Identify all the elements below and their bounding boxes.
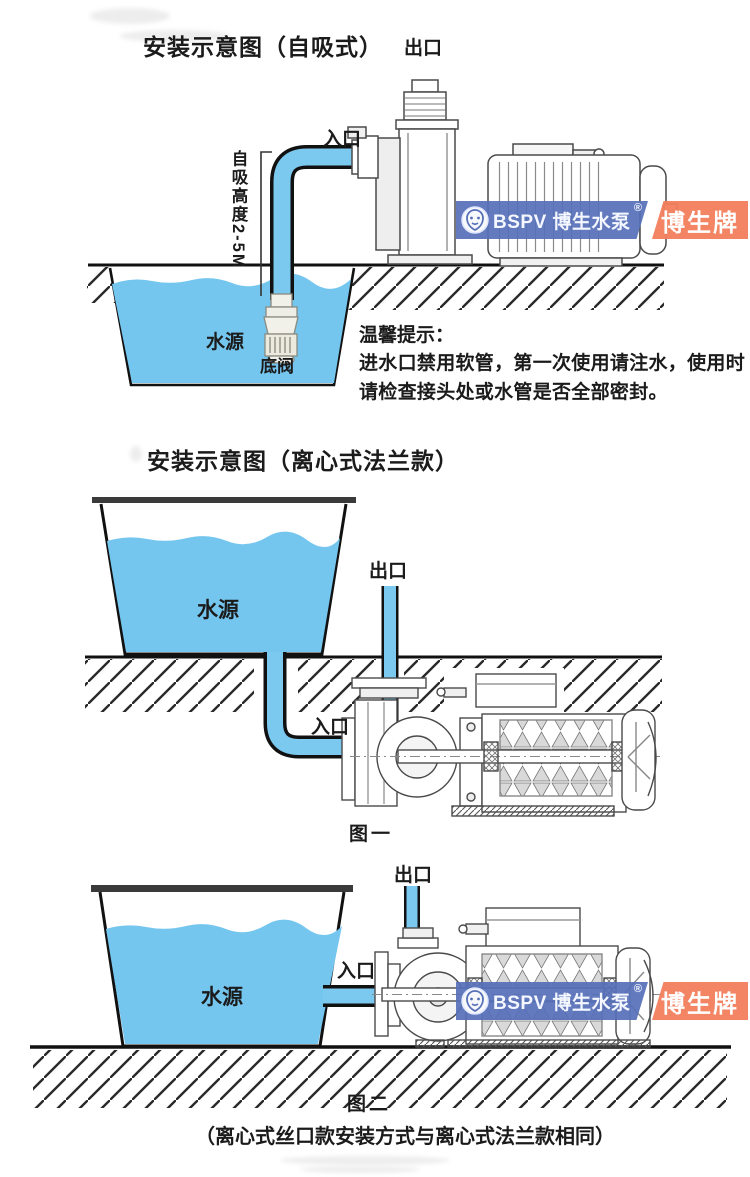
bottom-note: （离心式丝口款安装方式与离心式法兰款相同） — [55, 1120, 750, 1149]
water-source-label-2: 水源 — [197, 594, 239, 624]
brand-watermark-top: BSPV 博生水泵 ® 博生牌 — [456, 201, 748, 239]
lion-shield-logo-icon — [460, 205, 490, 235]
watermark-brand-strip: BSPV 博生水泵 ® — [456, 201, 648, 239]
tips-title: 温馨提示： — [359, 320, 454, 347]
watermark-badge-strip: 博生牌 — [652, 982, 748, 1020]
outlet-label-1: 出口 — [404, 33, 442, 60]
centrifugal-pump-section-2 — [372, 908, 662, 1047]
outlet-label-3: 出口 — [394, 860, 432, 887]
centrifugal-flange-diagram — [85, 497, 662, 816]
suction-height-label: 自吸高度2-5M — [226, 150, 250, 325]
figure1-caption: 图一 — [349, 819, 393, 846]
installation-diagram-page: 安装示意图（自吸式） 出口 入口 自吸高度2-5M 水源 底阀 温馨提示： 进水… — [0, 0, 750, 1177]
watermark-badge-strip: 博生牌 — [652, 201, 748, 239]
registered-mark: ® — [634, 983, 642, 995]
section2-title: 安装示意图（离心式法兰款） — [147, 442, 459, 476]
watermark-brand-text: BSPV 博生水泵 — [493, 988, 631, 1015]
registered-mark: ® — [634, 202, 642, 214]
watermark-badge-text: 博生牌 — [661, 203, 739, 238]
tank-water — [107, 532, 340, 652]
outlet-label-2: 出口 — [369, 556, 407, 583]
ground-hatch — [346, 267, 664, 310]
watermark-brand-strip: BSPV 博生水泵 ® — [456, 982, 648, 1020]
figure2-caption: 图二 — [347, 1089, 391, 1116]
inlet-label-3: 入口 — [337, 956, 375, 983]
water-source-label-3: 水源 — [201, 981, 243, 1011]
inlet-label-2: 入口 — [311, 712, 349, 739]
foot-valve-label: 底阀 — [260, 352, 294, 377]
inlet-label-1: 入口 — [323, 124, 361, 151]
brand-watermark-bottom: BSPV 博生水泵 ® 博生牌 — [456, 982, 748, 1020]
tank-lid — [92, 497, 356, 503]
section1-title: 安装示意图（自吸式） — [143, 28, 383, 62]
tank-lid — [91, 885, 353, 892]
watermark-badge-text: 博生牌 — [661, 984, 739, 1019]
watermark-brand-text: BSPV 博生水泵 — [493, 207, 631, 234]
lion-shield-logo-icon — [460, 986, 490, 1016]
water-source-label-1: 水源 — [206, 327, 244, 354]
tips-body: 进水口禁用软管，第一次使用请注水，使用时请检查接头处或水管是否全部密封。 — [359, 349, 750, 408]
